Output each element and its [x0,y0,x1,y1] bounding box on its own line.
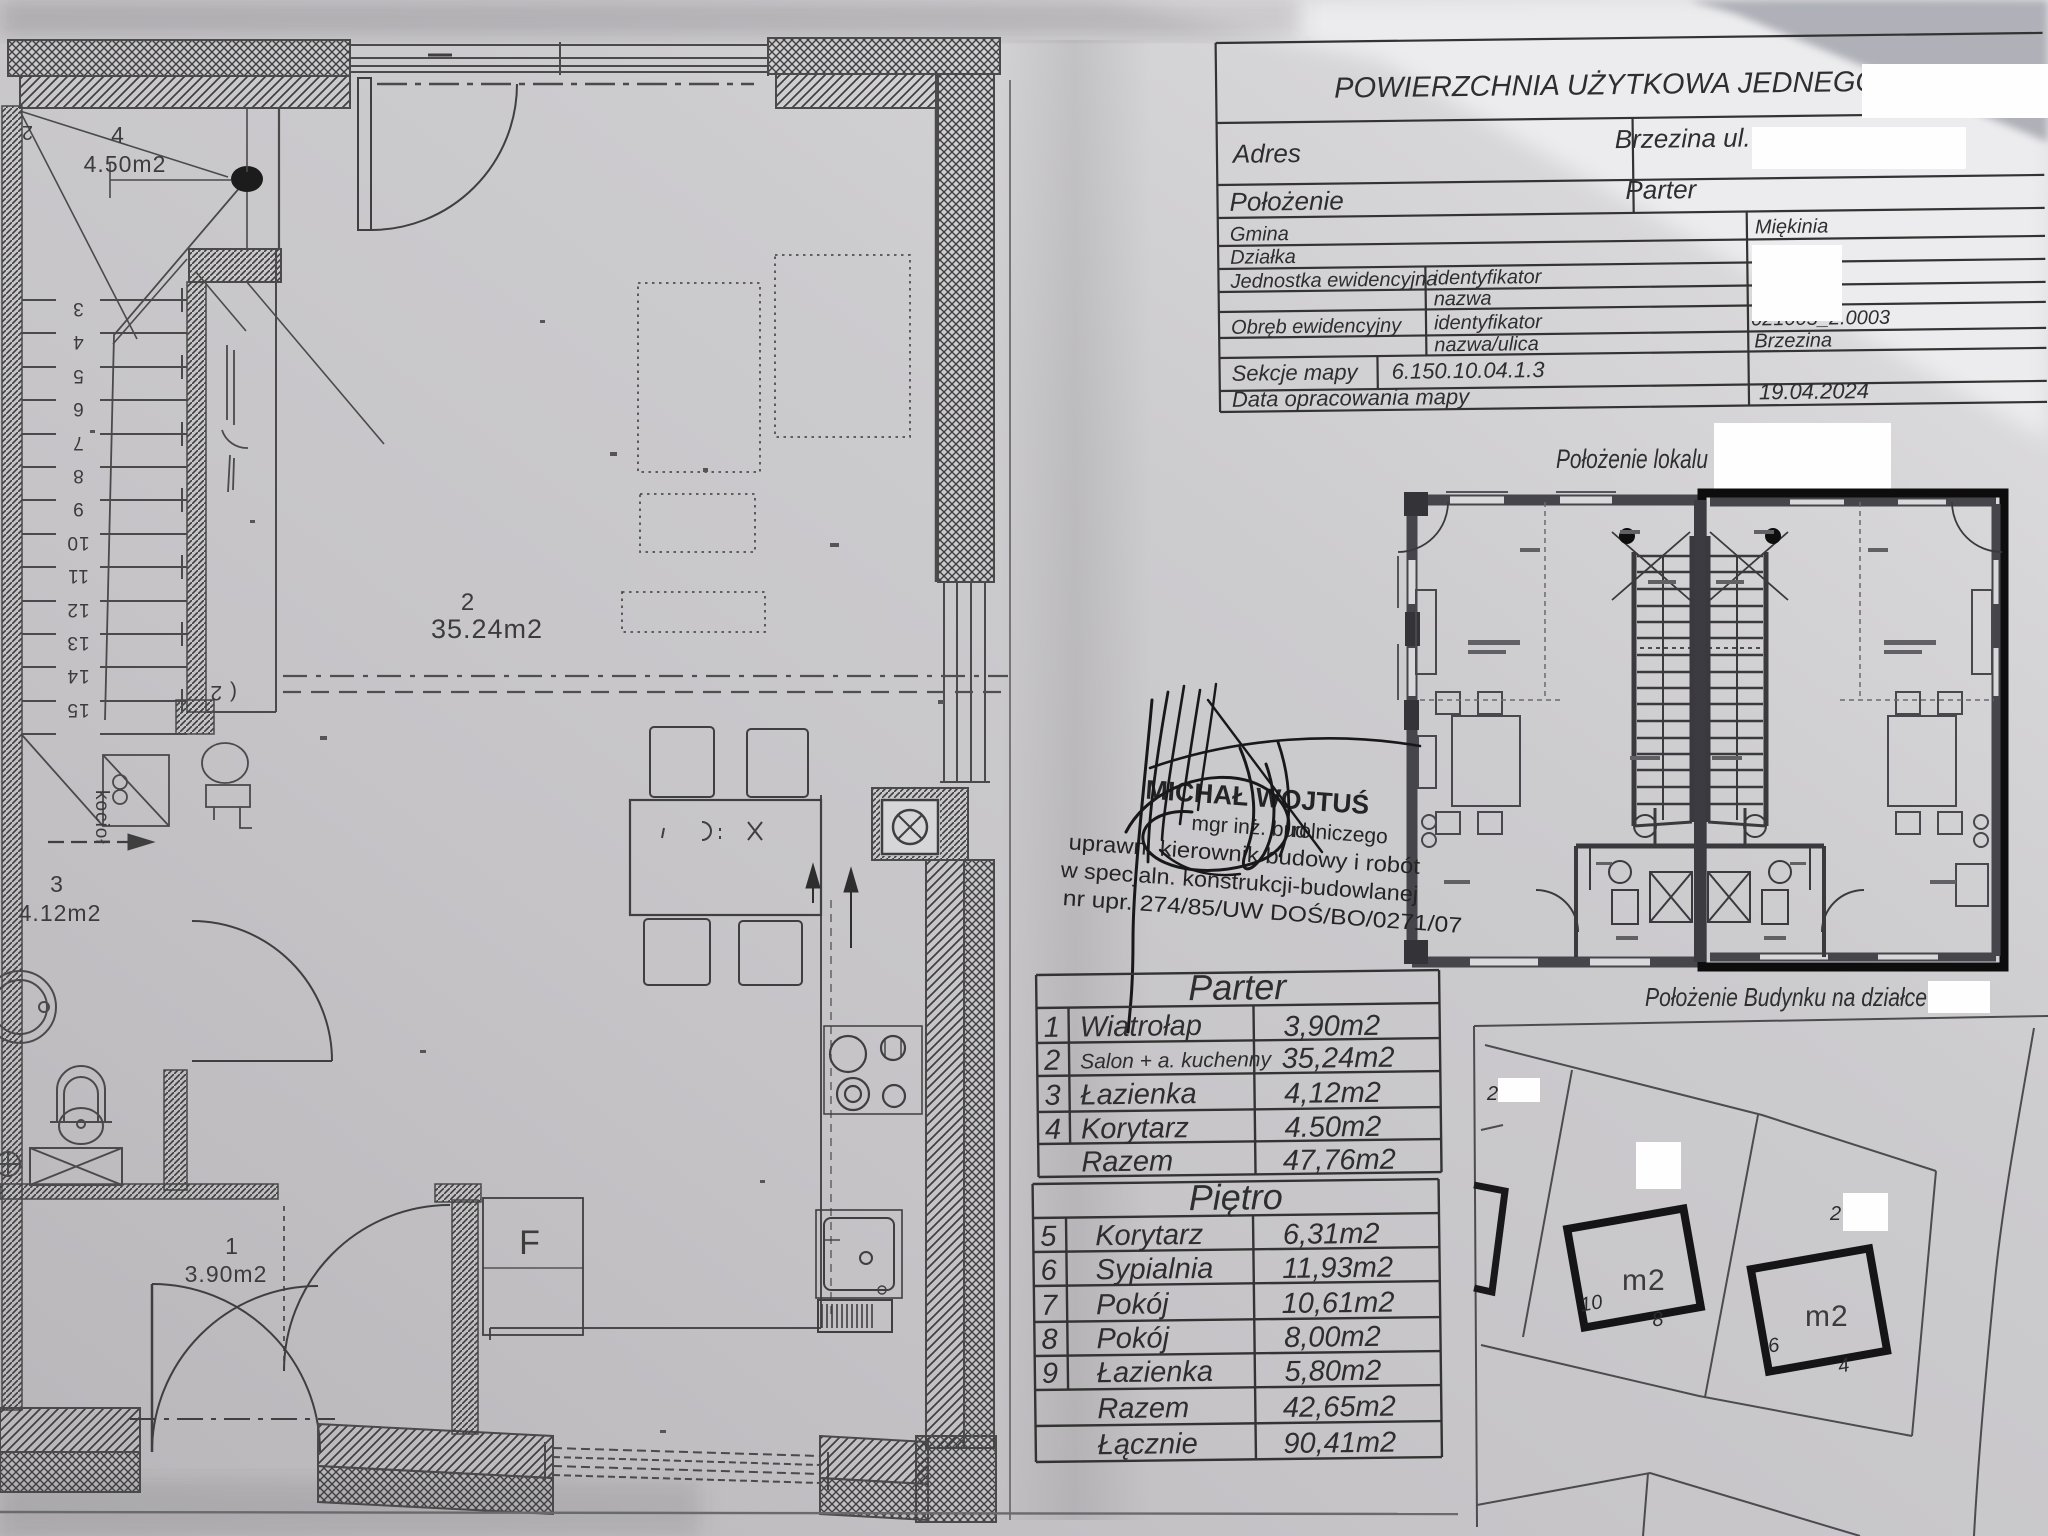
svg-text:Razem: Razem [1081,1145,1173,1178]
svg-text:47,76m2: 47,76m2 [1283,1144,1396,1177]
svg-text:1: 1 [1044,1012,1061,1044]
svg-text:Korytarz: Korytarz [1081,1112,1190,1145]
svg-text:2: 2 [1486,1083,1498,1105]
svg-text:Położenie lokalu: Położenie lokalu [1556,444,1708,474]
svg-text:Gmina: Gmina [1230,223,1289,246]
svg-text:Pokój: Pokój [1096,1322,1170,1355]
svg-text:identyfikator: identyfikator [1433,266,1542,289]
svg-text:2: 2 [1829,1203,1841,1225]
svg-text:11: 11 [67,565,89,586]
svg-text:nazwa/ulica: nazwa/ulica [1434,333,1539,356]
svg-text:6: 6 [72,398,84,419]
svg-text:1: 1 [225,1233,239,1259]
svg-text:identyfikator: identyfikator [1434,311,1543,334]
svg-text:Adres: Adres [1231,138,1301,169]
svg-text:Łącznie: Łącznie [1098,1428,1198,1461]
svg-text:9: 9 [72,498,84,519]
svg-text:Korytarz: Korytarz [1095,1219,1204,1252]
svg-text:nazwa: nazwa [1434,288,1492,311]
svg-text:10,61m2: 10,61m2 [1281,1287,1394,1320]
svg-text:3,90m2: 3,90m2 [1283,1010,1380,1043]
svg-text:4: 4 [72,331,84,352]
svg-text:35,24m2: 35,24m2 [1282,1042,1395,1075]
svg-text:19.04.2024: 19.04.2024 [1759,378,1869,404]
svg-text:kocioł: kocioł [91,790,112,845]
svg-text:14: 14 [66,665,89,686]
svg-text:7: 7 [1041,1290,1059,1322]
svg-text:15: 15 [66,699,89,720]
svg-text:9: 9 [1042,1358,1059,1390]
svg-text:Wiatrołap: Wiatrołap [1080,1010,1203,1043]
svg-text:8: 8 [72,465,84,486]
svg-text:3: 3 [50,871,64,897]
svg-text:4.50m2: 4.50m2 [1284,1111,1381,1144]
svg-text:3: 3 [1044,1080,1061,1112]
svg-text:90,41m2: 90,41m2 [1283,1427,1396,1460]
svg-text:5: 5 [1040,1221,1057,1253]
svg-text:Brzezina: Brzezina [1754,330,1832,353]
svg-text:2: 2 [461,589,475,616]
svg-text:Pokój: Pokój [1096,1288,1170,1321]
svg-text:Data opracowania mapy: Data opracowania mapy [1232,384,1472,412]
svg-text:Łazienka: Łazienka [1097,1356,1213,1389]
svg-text:( 2: ( 2 [209,681,237,704]
svg-text:Piętro: Piętro [1188,1176,1283,1218]
svg-text:Razem: Razem [1097,1392,1189,1425]
svg-text:Parter: Parter [1625,174,1698,205]
svg-text:Jednostka ewidencyjna: Jednostka ewidencyjna [1229,268,1437,293]
svg-text:11,93m2: 11,93m2 [1282,1252,1393,1285]
svg-text:7: 7 [72,432,84,453]
svg-text:Położenie: Położenie [1229,185,1344,216]
svg-text:4: 4 [1045,1114,1062,1146]
svg-text:4: 4 [111,122,125,148]
svg-text:m2: m2 [1805,1300,1849,1333]
svg-text:4.12m2: 4.12m2 [19,900,102,926]
svg-text:12: 12 [66,599,89,620]
svg-text:Sypialnia: Sypialnia [1095,1253,1213,1286]
svg-text:2: 2 [1043,1045,1061,1077]
svg-text:3: 3 [72,298,84,319]
svg-text:5,80m2: 5,80m2 [1284,1355,1381,1388]
svg-text:6,31m2: 6,31m2 [1283,1218,1380,1251]
svg-text:8,00m2: 8,00m2 [1284,1321,1381,1354]
svg-text:6.150.10.04.1.3: 6.150.10.04.1.3 [1391,357,1545,384]
svg-text:10: 10 [1578,1291,1604,1317]
svg-text:m2: m2 [1622,1264,1666,1297]
svg-text:Położenie Budynku na działce: Położenie Budynku na działce [1645,982,1927,1012]
svg-text:6: 6 [1040,1255,1057,1287]
svg-text:4,12m2: 4,12m2 [1284,1077,1381,1110]
svg-text:Parter: Parter [1188,966,1289,1008]
svg-text:2: 2 [21,121,33,143]
svg-text:Miękinia: Miękinia [1755,216,1829,239]
svg-text:3.90m2: 3.90m2 [185,1261,268,1287]
svg-text:Działka: Działka [1230,246,1296,269]
svg-text:42,65m2: 42,65m2 [1283,1391,1396,1424]
svg-text:35.24m2: 35.24m2 [431,614,543,644]
svg-text:Łazienka: Łazienka [1080,1078,1196,1111]
svg-text:Salon + a. kuchenny: Salon + a. kuchenny [1080,1048,1273,1073]
svg-text:5: 5 [72,365,84,386]
svg-text:Sekcje mapy: Sekcje mapy [1231,359,1359,386]
svg-text:8: 8 [1041,1324,1058,1356]
svg-text:4.50m2: 4.50m2 [84,151,167,177]
svg-text:13: 13 [66,632,89,653]
svg-text:Brzezina ul.: Brzezina ul. [1615,122,1751,154]
svg-text:Obręb ewidencyjny: Obręb ewidencyjny [1231,315,1402,339]
svg-text:10: 10 [66,532,89,553]
svg-text:F: F [519,1224,541,1262]
